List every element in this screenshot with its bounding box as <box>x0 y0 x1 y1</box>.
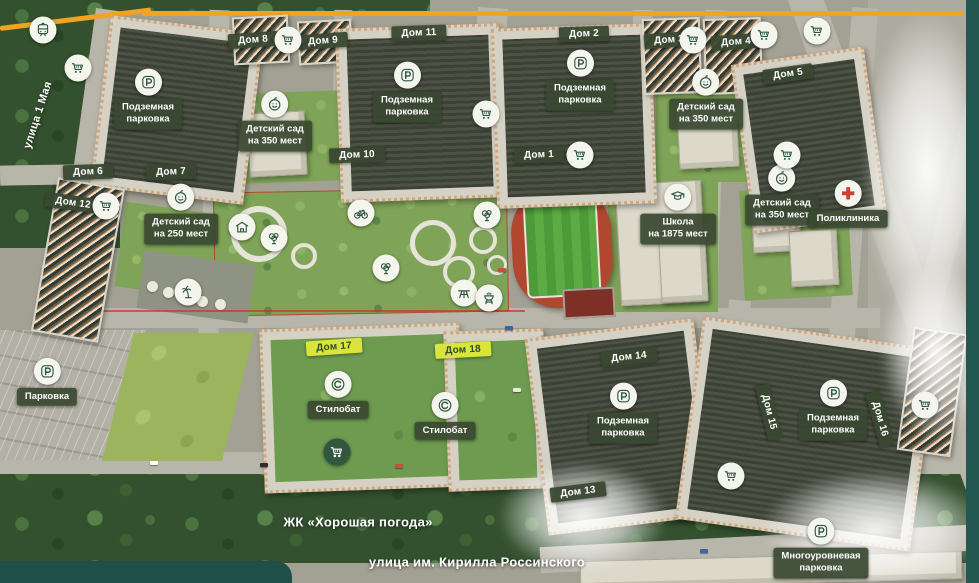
house-label-dom-6[interactable]: Дом 6 <box>63 164 113 181</box>
house-label-dom-16-label: Дом 16 <box>865 390 895 448</box>
complex-name-label-label: ЖК «Хорошая погода» <box>283 515 432 530</box>
house-label-dom-8-label: Дом 8 <box>228 31 279 49</box>
tree-icon <box>373 255 400 282</box>
house-label-dom-7-label: Дом 7 <box>146 164 196 181</box>
park-trees-marker-2[interactable] <box>474 202 501 229</box>
poi-stylobate-1-label: Стилобат <box>308 401 369 419</box>
shop-marker-8[interactable] <box>774 142 801 169</box>
marker-layer: Дом 6Дом 7Дом 8Дом 9Дом 10Дом 11Дом 12До… <box>0 0 979 583</box>
tree-icon <box>261 225 288 252</box>
complex-name-label: ЖК «Хорошая погода» <box>283 515 432 530</box>
house-label-dom-2[interactable]: Дом 2 <box>559 26 609 43</box>
park-bbq-marker[interactable] <box>476 285 503 312</box>
shop-marker-2[interactable] <box>275 27 302 54</box>
poi-underground-parking-3-label: Подземная парковка <box>546 80 614 111</box>
frame-bottom-panel <box>0 561 292 583</box>
shop-marker-1[interactable] <box>65 55 92 82</box>
parking-icon <box>567 50 594 77</box>
house-label-dom-8[interactable]: Дом 8 <box>228 31 279 49</box>
poi-underground-parking-3[interactable]: Подземная парковка <box>546 50 614 111</box>
kindergarten-icon <box>261 91 288 118</box>
house-label-dom-6-label: Дом 6 <box>63 164 113 181</box>
poi-stylobate-1[interactable]: Стилобат <box>308 371 369 419</box>
parking-icon <box>135 69 162 96</box>
house-label-dom-1-label: Дом 1 <box>514 147 564 164</box>
kindergarten-icon <box>167 184 194 211</box>
house-label-dom-2-label: Дом 2 <box>559 26 609 43</box>
house-label-dom-17[interactable]: Дом 17 <box>306 338 363 357</box>
cart-icon <box>718 463 745 490</box>
school-icon <box>665 184 692 211</box>
parking-icon <box>610 383 637 410</box>
kindergarten-icon <box>692 69 719 96</box>
poi-kindergarten-350-2[interactable]: Детский сад на 350 мест <box>669 69 743 130</box>
poi-kindergarten-350-1[interactable]: Детский сад на 350 мест <box>238 91 312 152</box>
parking-icon <box>820 380 847 407</box>
poi-underground-parking-1[interactable]: Подземная парковка <box>114 69 182 130</box>
bbq-icon <box>476 285 503 312</box>
poi-multilevel-parking-label: Многоуровневая парковка <box>773 548 868 579</box>
poi-underground-parking-5-label: Подземная парковка <box>799 410 867 441</box>
poi-kindergarten-350-1-label: Детский сад на 350 мест <box>238 121 312 152</box>
house-label-dom-1[interactable]: Дом 1 <box>514 147 564 164</box>
house-label-dom-14[interactable]: Дом 14 <box>601 347 658 368</box>
cart-icon <box>751 22 778 49</box>
poi-underground-parking-4[interactable]: Подземная парковка <box>589 383 657 444</box>
shop-marker-5[interactable] <box>680 27 707 54</box>
kindergarten-icon <box>768 165 795 192</box>
tram-icon <box>30 17 57 44</box>
cart-icon <box>93 193 120 220</box>
shop-marker-dark[interactable] <box>324 439 351 466</box>
park-picnic-marker[interactable] <box>451 280 478 307</box>
shop-marker-4[interactable] <box>567 142 594 169</box>
house-label-dom-16[interactable]: Дом 16 <box>865 390 895 448</box>
street-label-1-maya: улица 1 Мая <box>21 80 54 150</box>
bicycle-icon <box>348 200 375 227</box>
poi-underground-parking-1-label: Подземная парковка <box>114 99 182 130</box>
poi-multilevel-parking[interactable]: Многоуровневая парковка <box>773 518 868 579</box>
poi-school-1875-label: Школа на 1875 мест <box>640 214 716 245</box>
park-pavilion-marker[interactable] <box>229 214 256 241</box>
cart-icon <box>65 55 92 82</box>
parking-icon <box>33 358 60 385</box>
polyclinic-icon <box>834 180 861 207</box>
shop-marker-10[interactable] <box>718 463 745 490</box>
stylobate-icon <box>432 392 459 419</box>
park-bicycle-marker[interactable] <box>348 200 375 227</box>
street-label-rossinskogo-label: улица им. Кирилла Россинского <box>369 555 585 570</box>
frame-right-strip <box>966 0 979 583</box>
house-label-dom-15-label: Дом 15 <box>755 383 783 441</box>
poi-stylobate-2-label: Стилобат <box>415 422 476 440</box>
shop-marker-9[interactable] <box>93 193 120 220</box>
park-trees-marker-1[interactable] <box>261 225 288 252</box>
house-label-dom-13-label: Дом 13 <box>549 481 606 503</box>
shop-marker-11[interactable] <box>912 392 939 419</box>
poi-kindergarten-250-label: Детский сад на 250 мест <box>144 214 218 245</box>
cart-icon <box>275 27 302 54</box>
house-label-dom-11-label: Дом 11 <box>391 25 447 42</box>
cart-icon <box>473 101 500 128</box>
tram-stop-marker[interactable] <box>30 17 57 44</box>
house-label-dom-5[interactable]: Дом 5 <box>762 63 814 85</box>
cart-icon <box>774 142 801 169</box>
house-label-dom-10-label: Дом 10 <box>329 147 385 164</box>
parking-icon <box>807 518 834 545</box>
house-label-dom-18[interactable]: Дом 18 <box>435 341 491 359</box>
poi-kindergarten-350-2-label: Детский сад на 350 мест <box>669 99 743 130</box>
poi-kindergarten-250[interactable]: Детский сад на 250 мест <box>144 184 218 245</box>
cart-icon <box>680 27 707 54</box>
house-label-dom-7[interactable]: Дом 7 <box>146 164 196 181</box>
poi-polyclinic-label: Поликлиника <box>809 210 888 228</box>
cart-icon <box>804 18 831 45</box>
poi-surface-parking-label: Парковка <box>17 388 77 406</box>
poi-underground-parking-5[interactable]: Подземная парковка <box>799 380 867 441</box>
tree-icon <box>474 202 501 229</box>
cart-icon <box>324 439 351 466</box>
poi-surface-parking[interactable]: Парковка <box>17 358 77 406</box>
shop-marker-7[interactable] <box>804 18 831 45</box>
street-label-rossinskogo: улица им. Кирилла Россинского <box>369 555 585 570</box>
palm-icon <box>175 279 202 306</box>
poi-stylobate-2[interactable]: Стилобат <box>415 392 476 440</box>
shop-marker-3[interactable] <box>473 101 500 128</box>
house-label-dom-14-label: Дом 14 <box>601 347 658 368</box>
poi-polyclinic[interactable]: Поликлиника <box>809 180 888 228</box>
house-label-dom-9[interactable]: Дом 9 <box>298 32 349 50</box>
house-label-dom-10[interactable]: Дом 10 <box>329 147 385 164</box>
poi-school-1875[interactable]: Школа на 1875 мест <box>640 184 716 245</box>
stylobate-icon <box>325 371 352 398</box>
house-label-dom-9-label: Дом 9 <box>298 32 349 50</box>
masterplan-map[interactable]: Дом 6Дом 7Дом 8Дом 9Дом 10Дом 11Дом 12До… <box>0 0 979 583</box>
house-label-dom-18-label: Дом 18 <box>435 341 491 359</box>
house-label-dom-5-label: Дом 5 <box>762 63 814 85</box>
house-label-dom-13[interactable]: Дом 13 <box>549 481 606 503</box>
shop-marker-6[interactable] <box>751 22 778 49</box>
street-label-1-maya-label: улица 1 Мая <box>21 80 54 150</box>
park-trees-marker-3[interactable] <box>373 255 400 282</box>
cart-icon <box>567 142 594 169</box>
poi-underground-parking-2[interactable]: Подземная парковка <box>373 62 441 123</box>
pavilion-icon <box>229 214 256 241</box>
parking-icon <box>394 62 421 89</box>
cart-icon <box>912 392 939 419</box>
house-label-dom-17-label: Дом 17 <box>306 338 363 357</box>
house-label-dom-15[interactable]: Дом 15 <box>755 383 783 441</box>
poi-underground-parking-2-label: Подземная парковка <box>373 92 441 123</box>
poi-underground-parking-4-label: Подземная парковка <box>589 413 657 444</box>
picnic-icon <box>451 280 478 307</box>
park-palm-marker[interactable] <box>175 279 202 306</box>
house-label-dom-11[interactable]: Дом 11 <box>391 25 447 42</box>
